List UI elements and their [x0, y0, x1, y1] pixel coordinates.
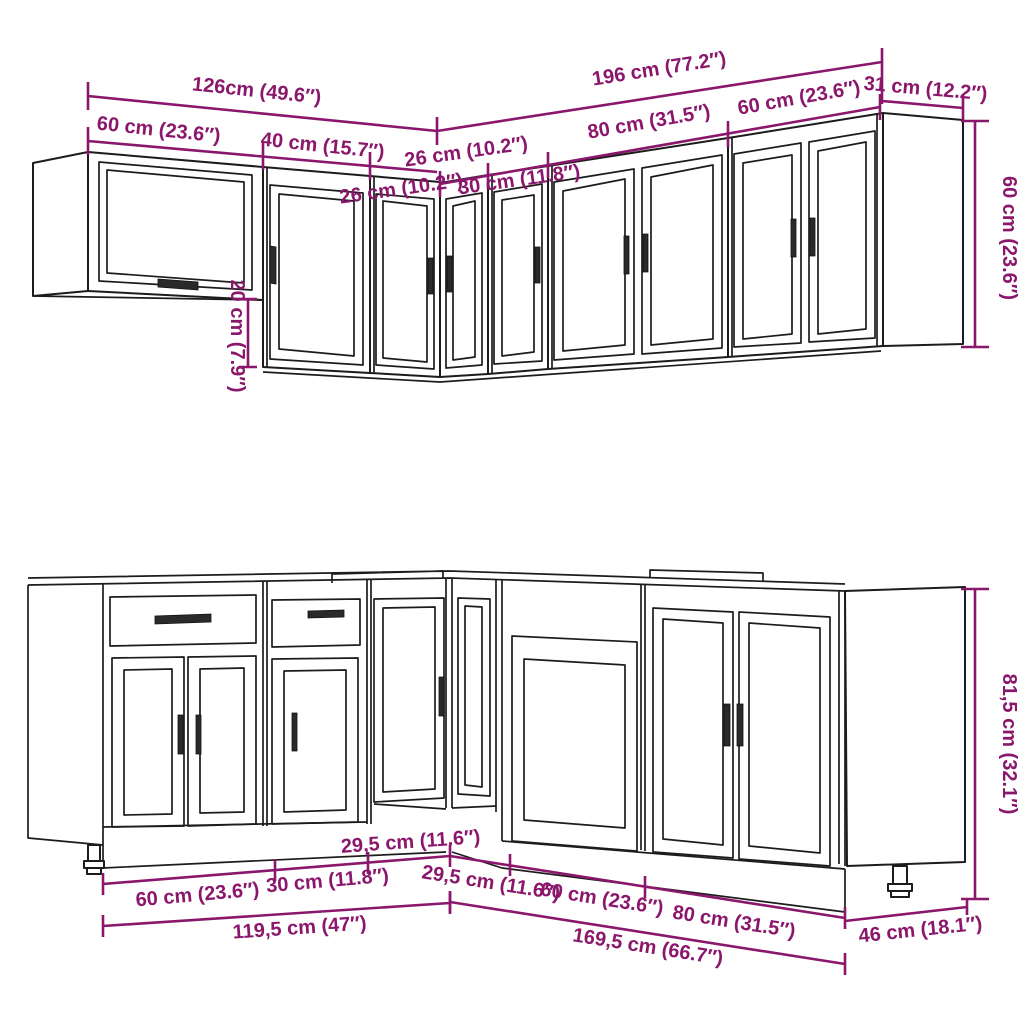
label-base-total-right: 169,5 cm (66.7″): [571, 924, 724, 969]
base-60-doors: [112, 656, 256, 827]
wall-cabinet-glass-60: [33, 152, 263, 300]
base-60-panel-door: [512, 636, 637, 851]
glass-cabinet-side-panel: [33, 152, 88, 296]
wall-end-panel: [883, 113, 963, 346]
dim-line-wall-height: [961, 121, 989, 347]
base-left-side-panel: [28, 584, 103, 868]
base-cabinet-row: 60 cm (23.6″) 30 cm (11.8″) 29,5 cm (11.…: [28, 570, 1020, 975]
base-30-door: [272, 658, 358, 824]
wall-30-handle: [535, 247, 540, 283]
wall-26L-handle: [428, 258, 433, 294]
base-60-door-handles: [178, 715, 201, 754]
base-30-drawer-handle: [308, 610, 344, 618]
base-cabinet-80: [653, 608, 830, 866]
label-wall-total-left: 126cm (49.6″): [191, 73, 322, 108]
label-wall-height: 60 cm (23.6″): [998, 176, 1020, 300]
wall-cabinet-26-right: [440, 175, 488, 377]
base-60-drawer-handle: [155, 614, 211, 624]
base-30-door-handle: [292, 713, 297, 751]
base-cabinet-30: [272, 599, 360, 824]
label-base-height: 81,5 cm (32.1″): [998, 674, 1020, 815]
wall-60-front: [728, 113, 883, 357]
wall-cabinet-row: 126cm (49.6″) 60 cm (23.6″) 40 cm (15.7″…: [33, 48, 1020, 393]
label-wall-total-right: 196 cm (77.2″): [591, 48, 728, 91]
wall-cabinet-60-double: [728, 113, 883, 357]
base-end-panel: [845, 587, 965, 866]
kitchen-cabinet-dimension-diagram: 126cm (49.6″) 60 cm (23.6″) 40 cm (15.7″…: [0, 0, 1024, 1024]
label-base-seg-60-left: 60 cm (23.6″): [135, 879, 261, 912]
base-left-foot: [84, 845, 104, 874]
label-wall-underhang: 20 cm (7.9″): [226, 280, 248, 393]
base-cabinet-60-panel: [512, 636, 637, 851]
label-wall-seg-26-left: 26 cm (10.2″): [403, 133, 529, 172]
base-cabinet-60: [110, 595, 256, 827]
base-corner-handle: [439, 677, 444, 716]
countertop-edges: [28, 570, 845, 591]
base-right-foot: [888, 866, 912, 897]
label-wall-seg-80: 80 cm (31.5″): [586, 100, 712, 143]
wall-cabinet-26-left: [370, 176, 440, 377]
diagram-canvas: 126cm (49.6″) 60 cm (23.6″) 40 cm (15.7″…: [0, 0, 1024, 1024]
base-cabinet-corner: [374, 598, 490, 802]
wall-cabinet-30: [488, 166, 548, 374]
base-corner-doors: [374, 598, 490, 802]
base-30-drawer: [272, 599, 360, 647]
wall-40-handle: [270, 246, 276, 284]
wall-26R-handle: [447, 256, 452, 292]
